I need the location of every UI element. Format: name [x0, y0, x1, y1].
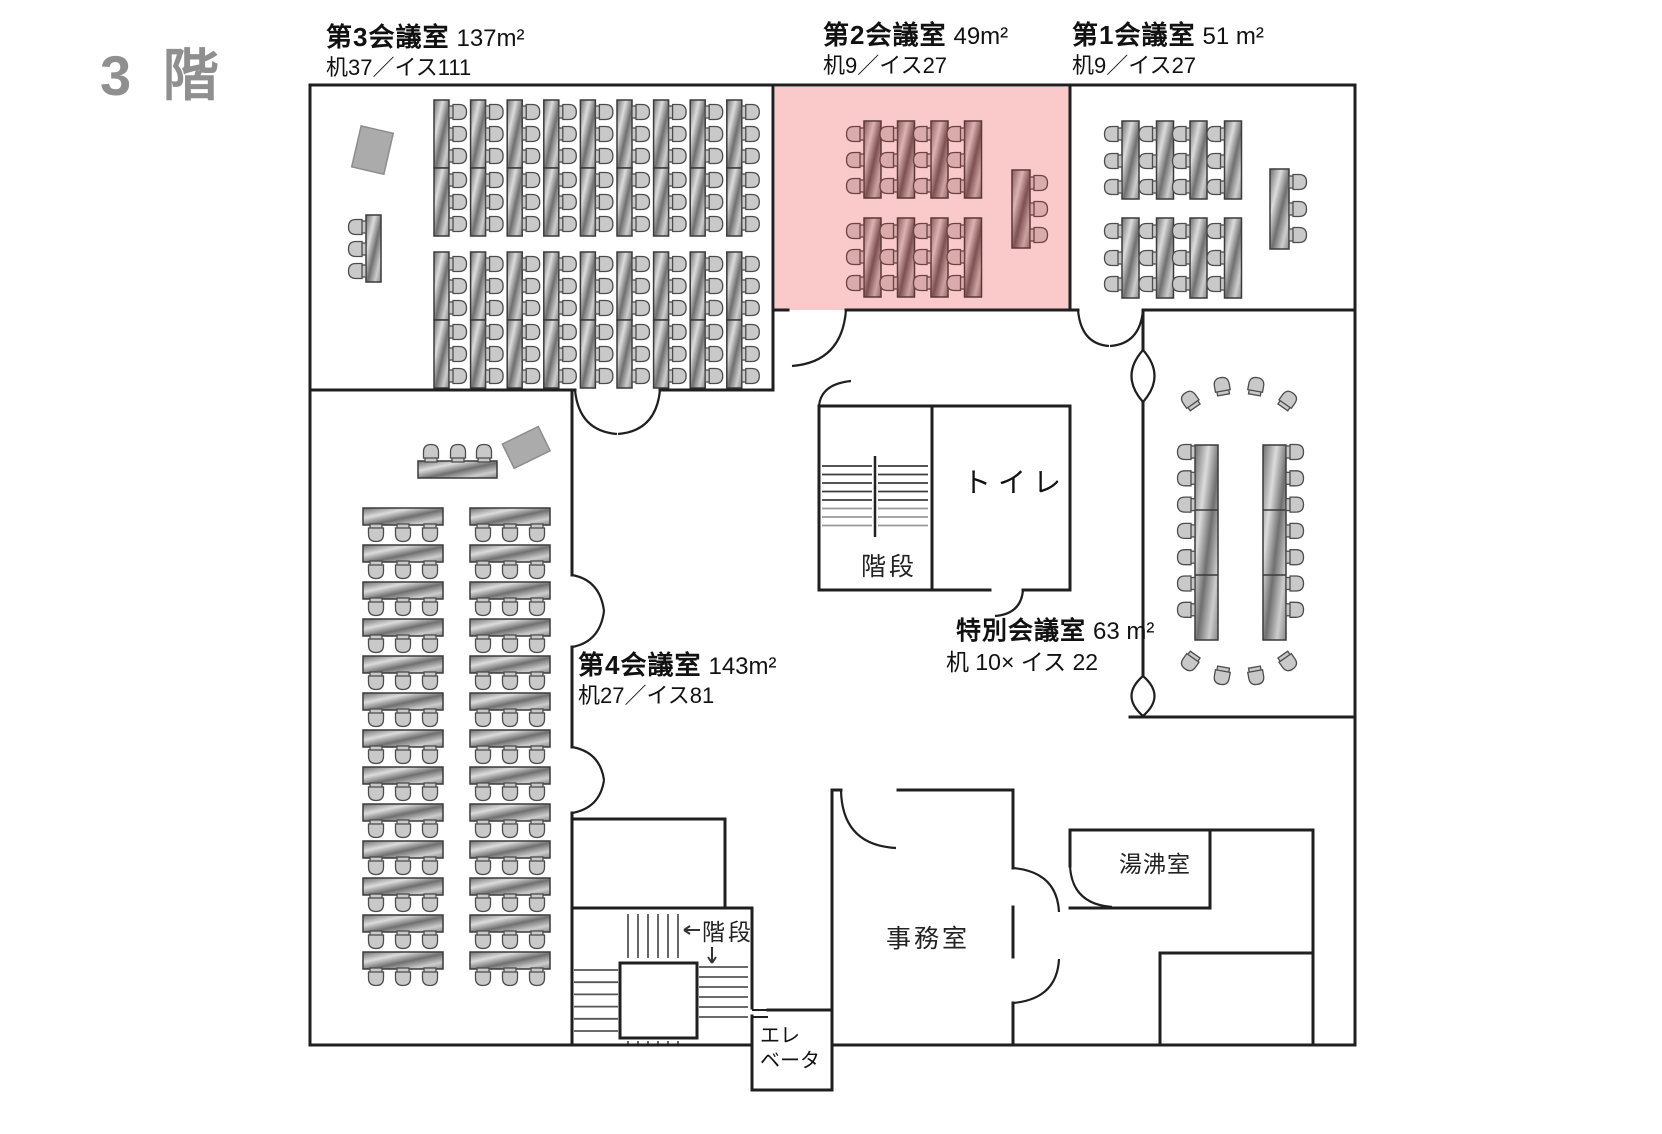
chair — [705, 325, 723, 340]
chair — [1289, 228, 1307, 243]
chair — [423, 561, 438, 579]
table — [580, 100, 595, 168]
table — [507, 320, 522, 388]
chair — [476, 931, 491, 949]
chair — [914, 276, 932, 291]
stairs-bottom-label: 階段 — [702, 918, 754, 946]
table — [470, 582, 550, 599]
chair — [530, 598, 545, 616]
chair — [914, 179, 932, 194]
table — [690, 168, 705, 236]
chair — [669, 195, 687, 210]
table — [363, 545, 443, 562]
chair — [559, 127, 577, 142]
chair — [1286, 550, 1304, 565]
chair — [705, 347, 723, 362]
table — [471, 168, 486, 236]
table — [363, 693, 443, 710]
chair — [559, 195, 577, 210]
chair — [1173, 224, 1191, 239]
elevator-door-icon — [752, 1010, 768, 1017]
chair — [449, 149, 467, 164]
table — [1190, 121, 1207, 199]
table — [363, 730, 443, 747]
chair — [522, 325, 540, 340]
office-label: 事務室 — [886, 924, 970, 955]
chair — [476, 968, 491, 986]
room1-capacity: 机9／イス27 — [1072, 53, 1264, 80]
chair — [486, 301, 504, 316]
table — [434, 168, 449, 236]
table — [363, 952, 443, 969]
room2-name: 第2会議室 — [823, 20, 946, 50]
chair — [423, 524, 438, 542]
chair — [705, 173, 723, 188]
chair — [476, 561, 491, 579]
chair — [477, 445, 492, 463]
chair — [423, 672, 438, 690]
chair — [1289, 202, 1307, 217]
chair — [632, 127, 650, 142]
chair — [705, 149, 723, 164]
chair — [632, 257, 650, 272]
chair — [1179, 650, 1201, 673]
chair — [451, 445, 466, 463]
chair — [632, 301, 650, 316]
chair — [1207, 127, 1225, 142]
chair — [559, 173, 577, 188]
special-room-label-line1: 特別会議室63 m² — [956, 616, 1154, 647]
chair — [847, 179, 865, 194]
stairs-arrow-down-icon — [708, 947, 716, 963]
chair — [595, 127, 613, 142]
table — [654, 100, 669, 168]
chair — [476, 894, 491, 912]
table — [898, 218, 915, 297]
table — [507, 100, 522, 168]
chair — [486, 347, 504, 362]
chair — [742, 369, 760, 384]
chair — [595, 325, 613, 340]
kitchenette-label: 湯沸室 — [1119, 850, 1191, 878]
chair — [847, 250, 865, 265]
chair — [530, 820, 545, 838]
special-room-name: 特別会議室 — [956, 617, 1086, 645]
chair — [559, 217, 577, 232]
chair — [947, 153, 965, 168]
table — [580, 252, 595, 320]
chair — [522, 127, 540, 142]
chair — [486, 173, 504, 188]
chair — [847, 127, 865, 142]
room3-label: 第3会議室137m² 机37／イス111 — [326, 22, 525, 82]
chair — [1207, 154, 1225, 169]
special-room-area: 63 m² — [1093, 618, 1154, 645]
stairs-arrow-left-icon — [684, 926, 700, 934]
elevator-label-line2: ベータ — [760, 1049, 820, 1074]
chair — [559, 105, 577, 120]
chair — [423, 931, 438, 949]
chair — [742, 217, 760, 232]
chair — [503, 894, 518, 912]
table — [363, 619, 443, 636]
chair — [595, 195, 613, 210]
chair — [476, 524, 491, 542]
table — [470, 508, 550, 525]
chair — [914, 153, 932, 168]
chair — [1178, 497, 1196, 512]
chair — [503, 968, 518, 986]
chair — [396, 635, 411, 653]
chair — [369, 857, 384, 875]
chair — [1030, 228, 1048, 243]
chair — [669, 149, 687, 164]
chair — [1139, 154, 1157, 169]
chair — [396, 709, 411, 727]
chair — [486, 369, 504, 384]
chair — [503, 709, 518, 727]
table — [470, 619, 550, 636]
chair — [742, 173, 760, 188]
chair — [522, 217, 540, 232]
chair — [669, 173, 687, 188]
chair — [369, 672, 384, 690]
chair — [522, 195, 540, 210]
table — [617, 100, 632, 168]
chair — [742, 195, 760, 210]
chair — [449, 369, 467, 384]
room3-name: 第3会議室 — [326, 22, 449, 52]
elevator-label: エレ ベータ — [760, 1024, 820, 1074]
table — [470, 841, 550, 858]
chair — [349, 264, 367, 279]
chair — [369, 635, 384, 653]
chair — [396, 598, 411, 616]
chair — [1247, 376, 1265, 396]
table — [864, 218, 881, 297]
table — [363, 841, 443, 858]
chair — [503, 783, 518, 801]
table — [965, 218, 982, 297]
chair — [595, 217, 613, 232]
chair — [369, 561, 384, 579]
chair — [530, 672, 545, 690]
chair — [947, 127, 965, 142]
chair — [1277, 650, 1299, 673]
room4-area: 143m² — [708, 653, 776, 680]
chair — [705, 257, 723, 272]
table — [931, 121, 948, 198]
chair — [1139, 224, 1157, 239]
table — [470, 693, 550, 710]
table — [727, 168, 742, 236]
chair — [522, 369, 540, 384]
chair — [522, 279, 540, 294]
chair — [449, 127, 467, 142]
room3-capacity: 机37／イス111 — [326, 55, 525, 82]
chair — [486, 257, 504, 272]
table — [544, 252, 559, 320]
table — [1190, 218, 1207, 298]
chair — [1178, 471, 1196, 486]
table — [690, 252, 705, 320]
chair — [947, 179, 965, 194]
chair — [503, 561, 518, 579]
chair — [847, 276, 865, 291]
chair — [880, 179, 898, 194]
chair — [503, 857, 518, 875]
table — [471, 100, 486, 168]
table — [470, 915, 550, 932]
chair — [705, 105, 723, 120]
room4-name: 第4会議室 — [578, 650, 701, 680]
chair — [449, 195, 467, 210]
lectern — [352, 126, 394, 174]
chair — [522, 347, 540, 362]
chair — [396, 820, 411, 838]
chair — [880, 153, 898, 168]
chair — [396, 672, 411, 690]
chair — [595, 173, 613, 188]
table — [544, 100, 559, 168]
chair — [449, 279, 467, 294]
chair — [1178, 523, 1196, 538]
chair — [742, 347, 760, 362]
chair — [1105, 180, 1123, 195]
chair — [559, 347, 577, 362]
chair — [595, 257, 613, 272]
floor-title: 3 階 — [100, 42, 227, 110]
table — [617, 252, 632, 320]
chair — [530, 857, 545, 875]
table — [507, 168, 522, 236]
chair — [423, 709, 438, 727]
table — [363, 878, 443, 895]
chair — [880, 250, 898, 265]
chair — [396, 968, 411, 986]
chair — [476, 857, 491, 875]
chair — [914, 250, 932, 265]
chair — [705, 217, 723, 232]
table — [470, 767, 550, 784]
chair — [486, 325, 504, 340]
table — [471, 320, 486, 388]
table — [470, 952, 550, 969]
table — [864, 121, 881, 198]
table — [544, 320, 559, 388]
table — [1122, 121, 1139, 199]
chair — [559, 325, 577, 340]
stairs-top-label: 階段 — [861, 552, 917, 583]
chair — [530, 894, 545, 912]
chair — [396, 931, 411, 949]
table — [470, 656, 550, 673]
table — [617, 320, 632, 388]
chair — [1139, 277, 1157, 292]
chair — [914, 127, 932, 142]
chair — [530, 783, 545, 801]
chair — [476, 635, 491, 653]
table — [1195, 445, 1218, 640]
chair — [1105, 154, 1123, 169]
toilet-label: トイレ — [963, 466, 1068, 500]
table — [470, 878, 550, 895]
room2-label: 第2会議室49m² 机9／イス27 — [823, 20, 1008, 80]
chair — [1178, 576, 1196, 591]
chair — [742, 127, 760, 142]
chair — [369, 709, 384, 727]
chair — [559, 301, 577, 316]
chair — [1173, 154, 1191, 169]
table — [580, 320, 595, 388]
chair — [449, 105, 467, 120]
chair — [369, 968, 384, 986]
chair — [1030, 202, 1048, 217]
chair — [369, 746, 384, 764]
chair — [742, 257, 760, 272]
chair — [632, 173, 650, 188]
chair — [530, 968, 545, 986]
chair — [1286, 576, 1304, 591]
chair — [369, 820, 384, 838]
chair — [396, 524, 411, 542]
chair — [349, 242, 367, 257]
chair — [742, 149, 760, 164]
table — [690, 320, 705, 388]
chair — [742, 279, 760, 294]
chair — [595, 149, 613, 164]
chair — [669, 257, 687, 272]
chair — [396, 894, 411, 912]
table — [1012, 170, 1030, 248]
chair — [396, 746, 411, 764]
chair — [705, 127, 723, 142]
table — [1157, 121, 1174, 199]
chair — [1030, 176, 1048, 191]
chair — [486, 105, 504, 120]
chair — [349, 220, 367, 235]
room1-label: 第1会議室51 m² 机9／イス27 — [1072, 20, 1264, 80]
chair — [559, 369, 577, 384]
table — [1122, 218, 1139, 298]
chair — [503, 746, 518, 764]
chair — [476, 598, 491, 616]
chair — [1173, 251, 1191, 266]
table — [470, 545, 550, 562]
chair — [880, 224, 898, 239]
chair — [476, 820, 491, 838]
table — [727, 252, 742, 320]
chair — [847, 153, 865, 168]
chair — [486, 149, 504, 164]
chair — [486, 127, 504, 142]
chair — [522, 301, 540, 316]
table — [690, 100, 705, 168]
chair — [880, 276, 898, 291]
chair — [595, 105, 613, 120]
table — [1263, 445, 1286, 640]
chair — [1139, 127, 1157, 142]
chair — [503, 820, 518, 838]
chair — [503, 635, 518, 653]
chair — [503, 598, 518, 616]
chair — [530, 561, 545, 579]
chair — [669, 347, 687, 362]
special-room-capacity: 机 10× イス 22 — [946, 648, 1098, 676]
room2-area: 49m² — [953, 23, 1008, 50]
chair — [632, 149, 650, 164]
chair — [669, 105, 687, 120]
chair — [595, 301, 613, 316]
chair — [522, 257, 540, 272]
chair — [530, 746, 545, 764]
table — [434, 100, 449, 168]
chair — [530, 931, 545, 949]
chair — [449, 217, 467, 232]
chair — [449, 173, 467, 188]
chair — [1286, 602, 1304, 617]
stair-landing — [572, 819, 725, 908]
table — [434, 252, 449, 320]
room1-area: 51 m² — [1202, 23, 1263, 50]
chair — [1179, 389, 1201, 412]
chair — [369, 894, 384, 912]
chair — [530, 635, 545, 653]
table — [363, 656, 443, 673]
chair — [424, 445, 439, 463]
chair — [396, 783, 411, 801]
table — [363, 582, 443, 599]
table — [363, 767, 443, 784]
room3-area: 137m² — [456, 25, 524, 52]
chair — [742, 325, 760, 340]
elevator-label-line1: エレ — [760, 1024, 820, 1049]
chair — [486, 195, 504, 210]
chair — [369, 598, 384, 616]
table — [471, 252, 486, 320]
chair — [632, 279, 650, 294]
chair — [595, 279, 613, 294]
table — [470, 730, 550, 747]
chair — [1207, 224, 1225, 239]
table — [1157, 218, 1174, 298]
lectern — [502, 427, 550, 469]
table — [470, 804, 550, 821]
table — [931, 218, 948, 297]
chair — [705, 369, 723, 384]
table — [654, 320, 669, 388]
chair — [947, 276, 965, 291]
room4-label: 第4会議室143m² 机27／イス81 — [578, 650, 777, 710]
chair — [449, 301, 467, 316]
chair — [632, 195, 650, 210]
table — [363, 915, 443, 932]
chair — [1178, 445, 1196, 460]
chair — [705, 301, 723, 316]
table — [434, 320, 449, 388]
chair — [486, 217, 504, 232]
table — [418, 461, 497, 478]
table — [1225, 121, 1242, 199]
chair — [669, 369, 687, 384]
chair — [742, 301, 760, 316]
table — [363, 508, 443, 525]
chair — [423, 894, 438, 912]
chair — [449, 325, 467, 340]
table — [965, 121, 982, 198]
chair — [369, 783, 384, 801]
table — [1225, 218, 1242, 298]
